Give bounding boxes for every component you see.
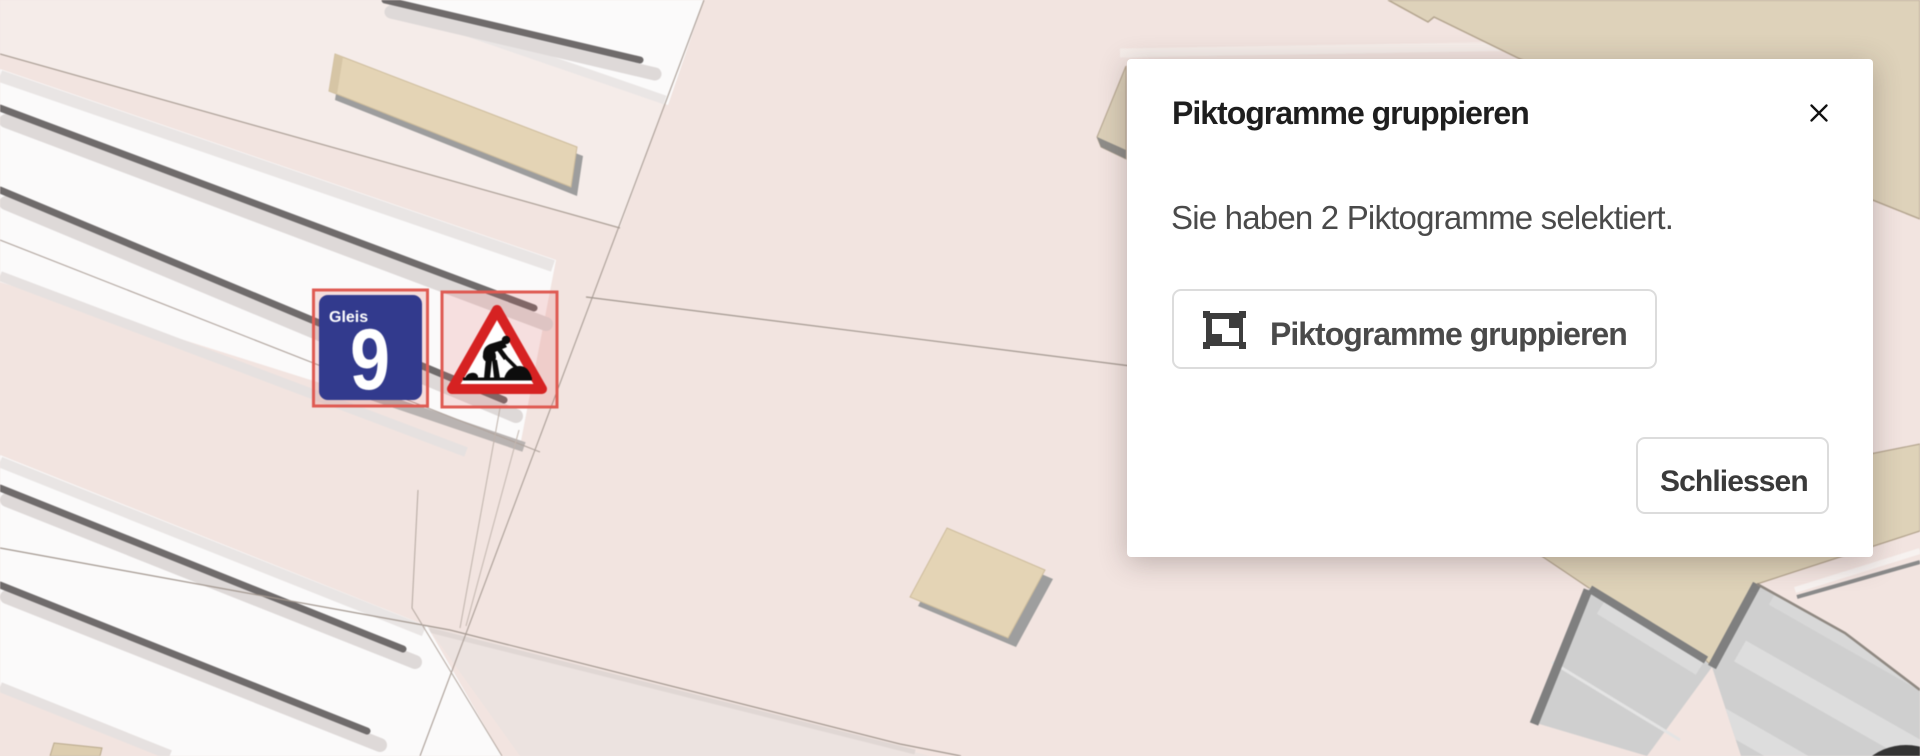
svg-text:9: 9 xyxy=(350,312,390,408)
